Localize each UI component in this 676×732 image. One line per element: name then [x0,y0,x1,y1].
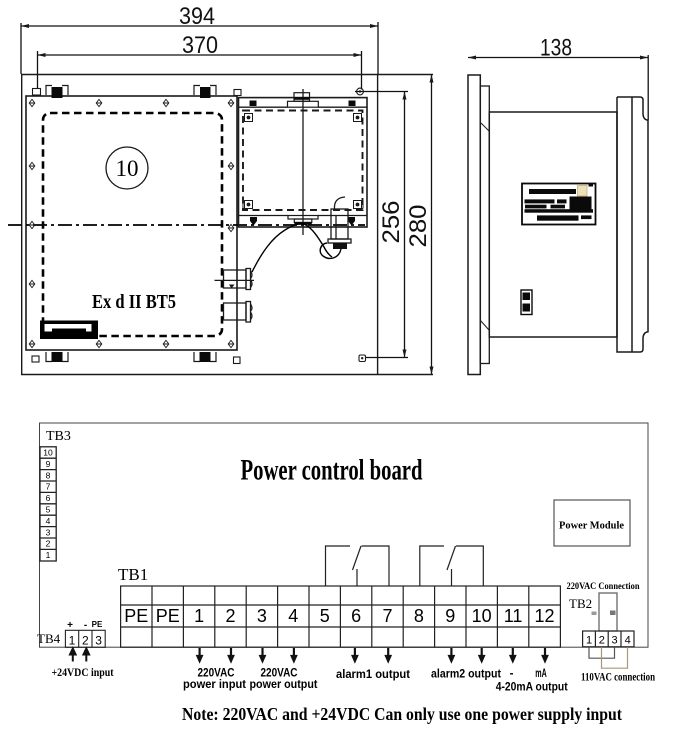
svg-text:11: 11 [504,606,523,626]
svg-text:power output: power output [250,679,318,691]
svg-text:1: 1 [586,635,592,647]
svg-text:220VAC: 220VAC [261,668,298,680]
svg-text:4: 4 [288,606,298,626]
svg-text:220VAC Connection: 220VAC Connection [567,581,640,591]
svg-text:2: 2 [46,539,51,549]
svg-text:138: 138 [540,35,572,62]
svg-text:TB2: TB2 [569,596,592,611]
svg-text:PE: PE [156,606,180,626]
svg-text:256: 256 [378,201,405,244]
svg-text:TB4: TB4 [37,631,61,646]
svg-text:PE: PE [124,606,148,626]
svg-text:5: 5 [320,606,330,626]
svg-text:+: + [67,620,73,631]
svg-text:6: 6 [46,493,51,503]
svg-text:1: 1 [194,606,204,626]
svg-text:-: - [84,620,87,631]
svg-text:4-20mA output: 4-20mA output [496,682,568,694]
svg-text:12: 12 [534,606,554,626]
svg-text:TB3: TB3 [46,429,71,444]
svg-text:3: 3 [257,606,267,626]
svg-text:alarm2 output: alarm2 output [431,669,501,681]
svg-text:PE: PE [92,620,103,629]
svg-text:10: 10 [472,606,492,626]
svg-text:8: 8 [46,470,51,480]
svg-text:6: 6 [351,606,361,626]
svg-text:Note: 220VAC and +24VDC Can on: Note: 220VAC and +24VDC Can only use one… [182,704,622,724]
svg-text:9: 9 [445,606,455,626]
svg-text:2: 2 [599,635,605,647]
svg-text:1: 1 [69,634,76,648]
svg-text:Ex d II BT5: Ex d II BT5 [92,291,176,313]
svg-text:mA: mA [535,668,547,680]
svg-text:10: 10 [43,448,53,458]
svg-text:394: 394 [179,3,215,30]
svg-text:110VAC connection: 110VAC connection [581,672,655,684]
svg-text:7: 7 [46,482,51,492]
svg-text:280: 280 [405,205,432,248]
svg-text:4: 4 [46,516,51,526]
svg-text:2: 2 [82,634,89,648]
svg-text:-: - [510,668,514,680]
svg-text:5: 5 [46,505,51,515]
svg-text:10: 10 [116,156,139,181]
svg-text:370: 370 [182,32,218,59]
svg-text:+24VDC input: +24VDC input [52,665,114,679]
svg-text:8: 8 [414,606,424,626]
svg-text:Power control board: Power control board [241,455,423,487]
svg-text:Power Module: Power Module [559,520,624,532]
svg-text:4: 4 [625,635,631,647]
svg-text:3: 3 [46,527,51,537]
svg-text:220VAC: 220VAC [198,668,235,680]
svg-text:TB1: TB1 [118,565,148,584]
svg-text:2: 2 [225,606,235,626]
svg-text:3: 3 [612,635,618,647]
svg-text:1: 1 [46,550,51,560]
svg-text:3: 3 [95,634,102,648]
svg-text:7: 7 [382,606,392,626]
svg-text:9: 9 [46,459,51,469]
svg-text:alarm1 output: alarm1 output [336,669,410,681]
svg-text:power input: power input [183,679,246,691]
